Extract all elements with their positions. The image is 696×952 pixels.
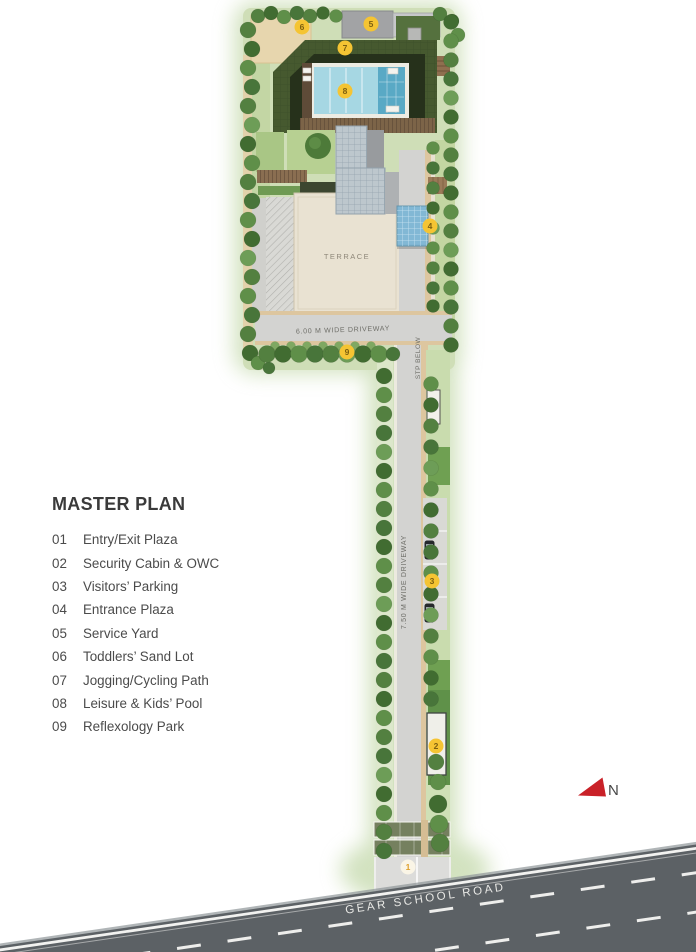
legend-item-label: Reflexology Park — [83, 719, 184, 734]
legend-item: 03 Visitors’ Parking — [52, 575, 332, 598]
legend-item-number: 02 — [52, 556, 83, 571]
leisure-kids-pool — [302, 63, 409, 118]
legend-item-label: Security Cabin & OWC — [83, 556, 219, 571]
legend-item-label: Entrance Plaza — [83, 602, 174, 617]
svg-text:5: 5 — [369, 19, 374, 29]
marker-3: 3 — [425, 574, 440, 589]
legend-item-number: 04 — [52, 602, 83, 617]
marker-9: 9 — [340, 345, 355, 360]
legend-item: 02 Security Cabin & OWC — [52, 551, 332, 574]
pavilion — [408, 28, 421, 42]
terrace-label: TERRACE — [324, 252, 370, 261]
legend-item-number: 03 — [52, 579, 83, 594]
legend-item: 04 Entrance Plaza — [52, 598, 332, 621]
building-wing — [367, 130, 384, 168]
marker-4: 4 — [423, 219, 438, 234]
north-arrow-icon — [578, 778, 606, 797]
legend-title: MASTER PLAN — [52, 494, 332, 515]
marker-8: 8 — [338, 84, 353, 99]
legend-item: 01 Entry/Exit Plaza — [52, 528, 332, 551]
svg-text:7: 7 — [343, 43, 348, 53]
marker-5: 5 — [364, 17, 379, 32]
legend-item: 07 Jogging/Cycling Path — [52, 668, 332, 691]
legend-item-number: 06 — [52, 649, 83, 664]
svg-text:3: 3 — [430, 576, 435, 586]
svg-text:6: 6 — [300, 22, 305, 32]
legend-item-label: Toddlers’ Sand Lot — [83, 649, 193, 664]
master-plan-page: TERRACE — [0, 0, 696, 952]
legend-item-number: 08 — [52, 696, 83, 711]
curb-left — [394, 345, 397, 885]
legend-item-label: Visitors’ Parking — [83, 579, 178, 594]
legend: MASTER PLAN 01 Entry/Exit Plaza 02 Secur… — [52, 494, 332, 739]
marker-1: 1 — [401, 860, 416, 875]
legend-item-number: 01 — [52, 532, 83, 547]
site-plan-svg: TERRACE — [0, 0, 696, 952]
top-block: TERRACE — [243, 8, 455, 370]
glass-canopy-upper — [336, 126, 367, 168]
legend-item: 06 Toddlers’ Sand Lot — [52, 645, 332, 668]
svg-text:9: 9 — [345, 347, 350, 357]
legend-item-number: 05 — [52, 626, 83, 641]
legend-item-number: 09 — [52, 719, 83, 734]
marker-7: 7 — [338, 41, 353, 56]
legend-item-label: Jogging/Cycling Path — [83, 673, 209, 688]
legend-item-label: Service Yard — [83, 626, 158, 641]
svg-text:1: 1 — [406, 862, 411, 872]
north-label: N — [608, 782, 619, 799]
curb-through — [421, 820, 428, 858]
glass-canopy-lower — [336, 168, 385, 214]
svg-text:8: 8 — [343, 86, 348, 96]
road-surface — [0, 820, 696, 952]
legend-item-label: Leisure & Kids’ Pool — [83, 696, 202, 711]
marker-6: 6 — [295, 20, 310, 35]
wood-walkway — [257, 170, 307, 183]
legend-list: 01 Entry/Exit Plaza 02 Security Cabin & … — [52, 528, 332, 739]
driveway-7-5m-label: 7.50 M WIDE DRIVEWAY — [401, 535, 408, 629]
lawn-patch — [256, 132, 284, 172]
marker-2: 2 — [429, 739, 444, 754]
stairs — [266, 197, 297, 313]
legend-item: 05 Service Yard — [52, 622, 332, 645]
legend-item-label: Entry/Exit Plaza — [83, 532, 178, 547]
stp-label: STP BELOW — [415, 336, 422, 379]
legend-item-number: 07 — [52, 673, 83, 688]
svg-text:2: 2 — [434, 741, 439, 751]
tree-highlight — [309, 137, 321, 149]
svg-text:4: 4 — [428, 221, 433, 231]
driveway-horizontal: 6.00 M WIDE DRIVEWAY — [255, 311, 452, 345]
legend-item: 09 Reflexology Park — [52, 715, 332, 738]
legend-item: 08 Leisure & Kids’ Pool — [52, 692, 332, 715]
compass: N — [578, 778, 619, 800]
